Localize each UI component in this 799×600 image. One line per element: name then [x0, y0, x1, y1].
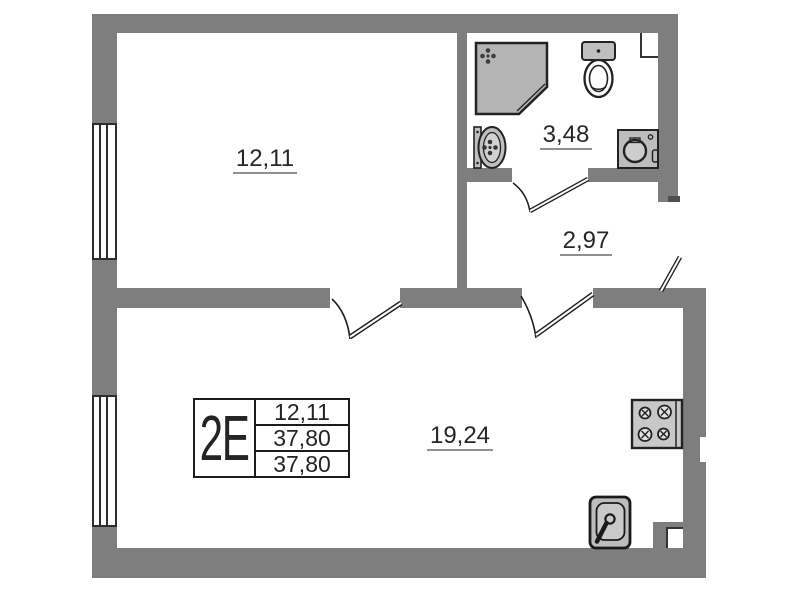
kitchen-sink-icon	[590, 497, 630, 548]
unit-areas-column: 12,11 37,80 37,80	[256, 400, 348, 476]
wall-bottom	[92, 548, 706, 578]
vent-shaft-icon	[640, 33, 658, 58]
wall-bathroom-right	[658, 33, 678, 202]
corner-duct-icon	[666, 527, 683, 548]
wall-middle-left	[117, 288, 330, 308]
door-swing-bathroom	[513, 179, 588, 212]
hallway-area-label: 2,97	[550, 228, 622, 256]
unit-area-row: 37,80	[256, 426, 348, 452]
living-area-label: 19,24	[422, 423, 498, 451]
door-swing-room	[332, 299, 401, 339]
entry-door-leaf	[661, 257, 680, 291]
wall-notch	[700, 437, 706, 462]
window-icon-top-room	[92, 123, 117, 260]
washbasin-icon	[474, 127, 506, 168]
washing-machine-icon	[618, 130, 658, 168]
entry-door-jamb	[668, 196, 680, 202]
room-area-label: 12,11	[225, 146, 305, 174]
wall-middle-center	[400, 288, 522, 308]
floor-plan: 12,11 3,48 2,97 19,24 2E 12,11 37,80 37,…	[0, 0, 799, 600]
unit-area-row: 12,11	[256, 400, 348, 426]
toilet-icon	[582, 42, 615, 97]
unit-label-cell: 2E	[195, 400, 256, 476]
stove-icon	[632, 400, 682, 448]
unit-label: 2E	[200, 406, 249, 470]
unit-info-table: 2E 12,11 37,80 37,80	[193, 398, 350, 478]
shower-icon	[476, 43, 547, 114]
wall-right	[683, 288, 706, 548]
window-mullion	[99, 125, 101, 258]
wall-bathroom-bottom-left	[467, 168, 512, 182]
wall-middle-right	[593, 288, 706, 308]
window-mullion	[106, 125, 108, 258]
bathroom-area-label: 3,48	[532, 122, 600, 150]
door-swing-living	[521, 294, 593, 338]
window-mullion	[99, 397, 101, 525]
window-mullion	[106, 397, 108, 525]
wall-bathroom-bottom-right	[588, 168, 658, 182]
unit-area-row: 37,80	[256, 452, 348, 476]
window-icon-living-room	[92, 395, 117, 527]
wall-room-divider	[457, 33, 467, 288]
wall-top	[92, 14, 678, 33]
